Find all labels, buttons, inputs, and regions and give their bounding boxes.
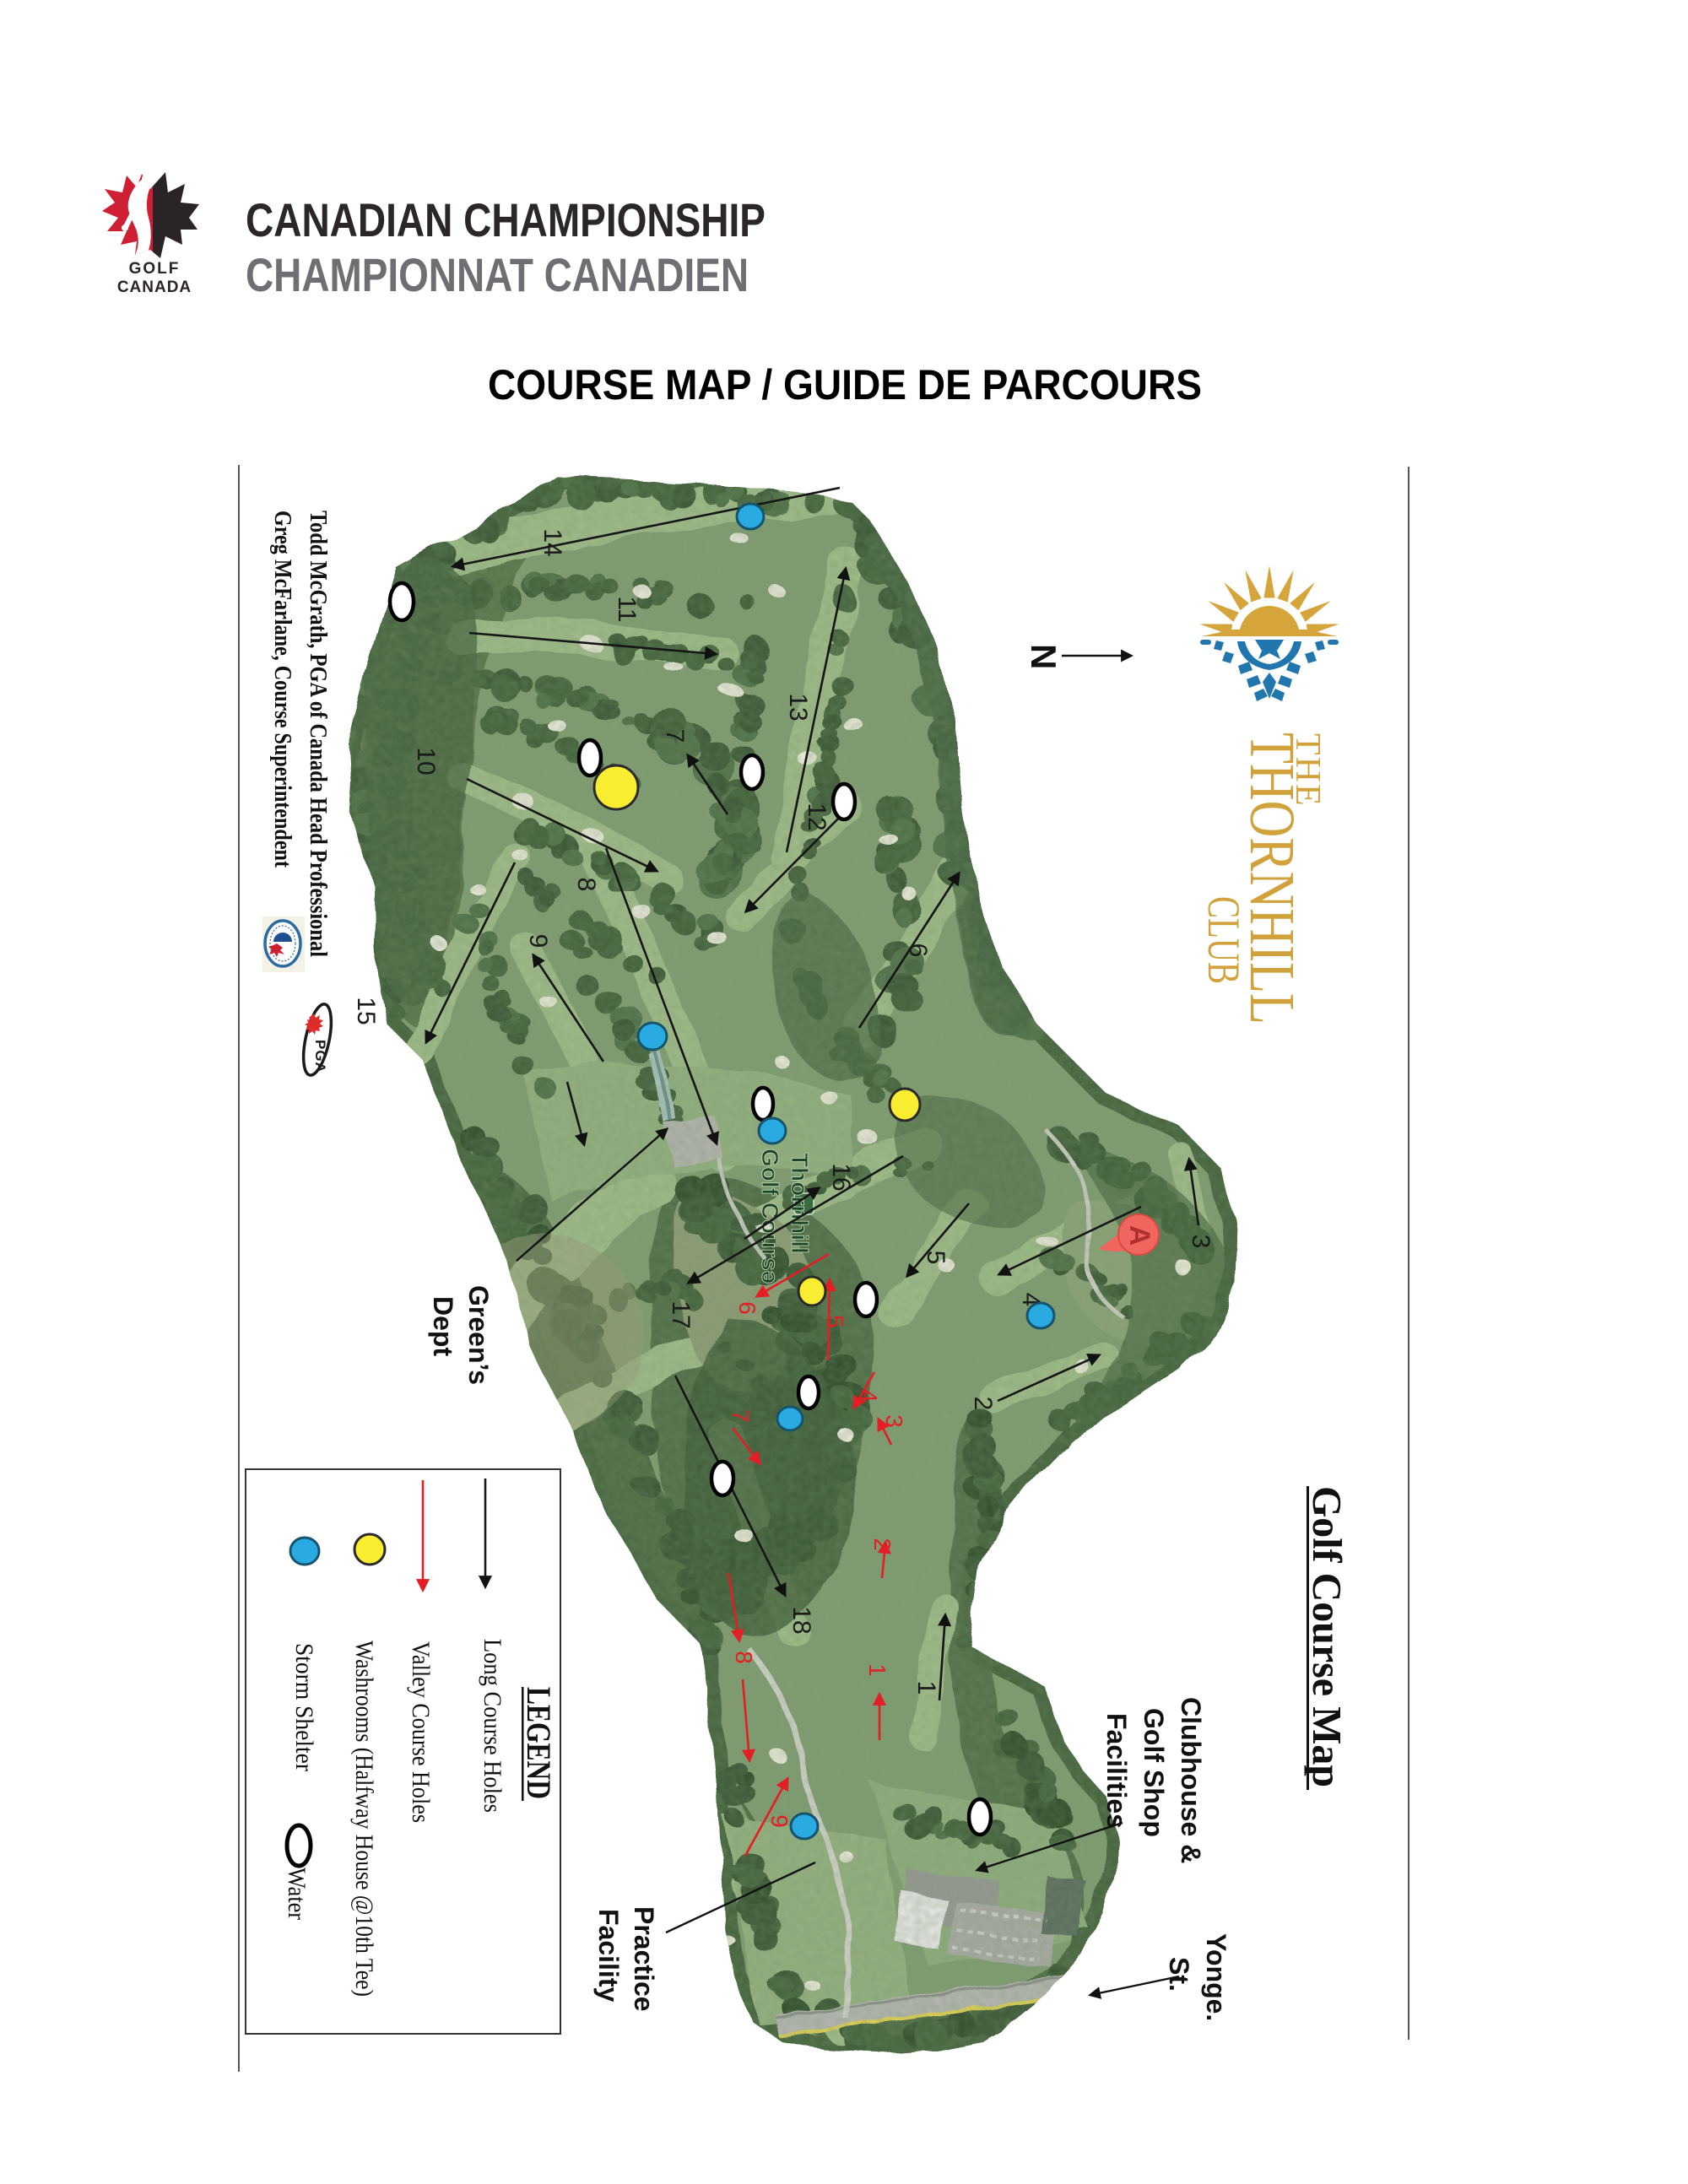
svg-text:3: 3 [1187,1235,1215,1249]
svg-text:N: N [1024,644,1063,669]
svg-text:6: 6 [734,1301,760,1315]
svg-text:COURSE MAP / GUIDE DE PARCOURS: COURSE MAP / GUIDE DE PARCOURS [488,361,1202,408]
svg-text:13: 13 [784,693,812,721]
svg-text:Clubhouse &: Clubhouse & [1176,1697,1206,1863]
svg-text:Greg McFarlane, Course Superin: Greg McFarlane, Course Superintendent [269,511,295,868]
svg-text:17: 17 [667,1300,695,1328]
svg-text:7: 7 [728,1409,754,1423]
svg-text:18: 18 [787,1606,815,1634]
svg-text:4: 4 [856,1389,882,1403]
svg-text:Long Course Holes: Long Course Holes [479,1639,506,1813]
svg-text:Valley Course Holes: Valley Course Holes [407,1641,435,1823]
svg-text:LEGEND: LEGEND [520,1687,558,1799]
svg-text:16: 16 [827,1163,855,1191]
svg-text:St.: St. [1164,1957,1194,1992]
svg-text:Facilities: Facilities [1101,1713,1132,1829]
svg-text:Golf Shop: Golf Shop [1139,1708,1169,1837]
svg-text:Washrooms (Halfway House @10th: Washrooms (Halfway House @10th Tee) [350,1641,378,1997]
svg-text:PGA: PGA [312,1040,328,1073]
svg-text:Dept: Dept [428,1296,458,1356]
svg-text:5: 5 [922,1251,949,1265]
svg-text:1: 1 [864,1663,890,1677]
svg-text:Water: Water [283,1868,311,1920]
svg-text:A: A [1123,1225,1155,1246]
svg-text:8: 8 [572,878,600,892]
svg-text:10: 10 [412,747,440,775]
svg-text:5: 5 [822,1315,848,1328]
svg-text:1: 1 [912,1681,940,1695]
svg-text:8: 8 [731,1651,757,1664]
svg-text:2: 2 [969,1397,997,1411]
svg-text:Yonge.: Yonge. [1201,1933,1231,2021]
svg-text:12: 12 [803,803,830,830]
svg-text:CANADA: CANADA [117,278,192,296]
svg-text:9: 9 [766,1814,793,1828]
svg-text:15: 15 [352,997,380,1024]
svg-text:Thornhill: Thornhill [787,1153,813,1254]
svg-text:Storm Shelter: Storm Shelter [290,1643,318,1771]
svg-text:14: 14 [538,528,566,556]
svg-text:CLUB: CLUB [1198,896,1249,984]
svg-text:Golf Course Map: Golf Course Map [1304,1486,1350,1787]
svg-text:Todd McGrath, PGA of Canada He: Todd McGrath, PGA of Canada Head Profess… [305,511,331,957]
svg-text:2: 2 [869,1538,895,1551]
svg-text:7: 7 [661,729,689,743]
svg-text:Green’s: Green’s [463,1285,494,1385]
svg-text:3: 3 [881,1414,907,1428]
svg-text:CHAMPIONNAT CANADIEN: CHAMPIONNAT CANADIEN [246,248,749,301]
svg-text:11: 11 [613,596,641,622]
svg-text:9: 9 [524,934,552,949]
svg-text:GOLF: GOLF [129,260,181,278]
svg-text:Facility: Facility [593,1909,624,2002]
svg-text:6: 6 [904,943,932,958]
svg-text:Practice: Practice [629,1906,659,2012]
svg-text:CANADIAN CHAMPIONSHIP: CANADIAN CHAMPIONSHIP [246,193,766,246]
